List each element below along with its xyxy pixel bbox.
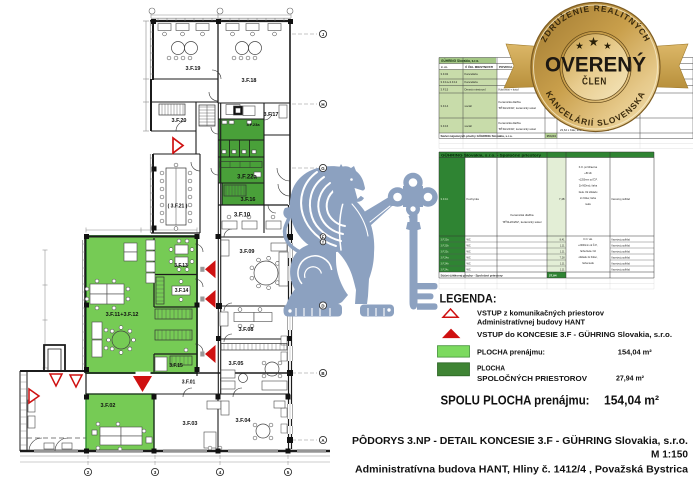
svg-text:3.F.23a: 3.F.23a xyxy=(441,239,450,242)
svg-text:3.F.16: 3.F.16 xyxy=(241,197,256,203)
svg-text:2x Kišter, farba: 2x Kišter, farba xyxy=(580,197,597,200)
svg-text:'BŤ4H/24/02', keramický sokel: 'BŤ4H/24/02', keramický sokel xyxy=(499,126,537,131)
svg-text:Kazetový podhľad: Kazetový podhľad xyxy=(612,198,631,201)
svg-text:Kuchynka: Kuchynka xyxy=(467,197,480,201)
svg-text:3.F.16: 3.F.16 xyxy=(441,124,449,128)
svg-text:3.F.14: 3.F.14 xyxy=(175,288,189,294)
svg-text:'BŤ4H/24/02', keramický sokel: 'BŤ4H/24/02', keramický sokel xyxy=(499,105,537,110)
svg-text:3.F.03: 3.F.03 xyxy=(183,421,198,427)
svg-text:3.F.23c: 3.F.23c xyxy=(441,251,450,254)
svg-text:5: 5 xyxy=(287,470,290,475)
svg-text:+2000mm od Č.P.,: +2000mm od Č.P., xyxy=(578,244,598,247)
svg-text:D: D xyxy=(321,303,324,308)
svg-text:+80 db: +80 db xyxy=(584,172,592,175)
svg-text:3.F.08: 3.F.08 xyxy=(239,327,254,333)
svg-text:sociál: sociál xyxy=(465,104,473,108)
svg-text:+1250mm od Č.P.: +1250mm od Č.P. xyxy=(578,178,597,181)
svg-text:1,11: 1,11 xyxy=(560,269,565,272)
svg-text:WC: WC xyxy=(467,245,471,248)
svg-text:Kancelária: Kancelária xyxy=(465,80,479,84)
svg-text:Kancelária: Kancelária xyxy=(465,72,479,76)
svg-text:Administratívnej budovy HANT: Administratívnej budovy HANT xyxy=(477,318,586,327)
svg-text:154,04 m²: 154,04 m² xyxy=(604,394,659,408)
svg-text:Kazetový podhľad: Kazetový podhľad xyxy=(612,239,631,242)
svg-text:G: G xyxy=(321,166,325,171)
svg-text:OVERENÝ: OVERENÝ xyxy=(545,53,646,77)
svg-text:3.F.24c: 3.F.24c xyxy=(441,269,450,272)
svg-text:sociál: sociál xyxy=(465,124,473,128)
svg-text:č. m.: č. m. xyxy=(441,65,448,69)
svg-text:3.F.04: 3.F.04 xyxy=(236,418,252,424)
svg-text:8,41: 8,41 xyxy=(560,239,565,242)
svg-text:154,04 m²: 154,04 m² xyxy=(618,348,653,357)
svg-text:3.F.10: 3.F.10 xyxy=(234,213,251,219)
svg-text:3.F.20: 3.F.20 xyxy=(172,118,187,124)
svg-text:WC: WC xyxy=(467,251,471,254)
svg-text:3.F.11+3.F.12: 3.F.11+3.F.12 xyxy=(106,312,139,318)
svg-text:farba biela. Od: farba biela. Od xyxy=(580,250,596,253)
svg-text:3.F.05: 3.F.05 xyxy=(229,361,244,367)
svg-text:Keramická dlažba: Keramická dlažba xyxy=(499,100,522,104)
svg-text:Keramická dlažba: Keramická dlažba xyxy=(511,213,534,217)
svg-text:3.F.24b: 3.F.24b xyxy=(441,263,450,266)
svg-text:3.F.13: 3.F.13 xyxy=(174,263,188,269)
svg-text:3.F.09: 3.F.09 xyxy=(240,249,255,255)
svg-text:2(+900mv), farba: 2(+900mv), farba xyxy=(579,185,598,188)
svg-text:2: 2 xyxy=(87,470,90,475)
svg-text:3.F.15: 3.F.15 xyxy=(441,88,449,92)
svg-text:27,94: 27,94 xyxy=(549,273,557,277)
svg-text:3.F.23a: 3.F.23a xyxy=(246,122,260,127)
svg-text:VSTUP do KONCESIE 3.F - GÜHRIN: VSTUP do KONCESIE 3.F - GÜHRING Slovakia… xyxy=(477,330,672,339)
svg-text:LEGENDA:: LEGENDA: xyxy=(440,294,497,306)
svg-text:GÜHRING Slovakia, s.r.o.: GÜHRING Slovakia, s.r.o. xyxy=(441,58,479,63)
svg-text:★: ★ xyxy=(603,41,612,52)
svg-text:VSTUP z komunikačných priestor: VSTUP z komunikačných priestorov xyxy=(477,309,604,318)
svg-text:Kazetový podhľad: Kazetový podhľad xyxy=(612,245,631,248)
svg-text:3.F.1b: 3.F.1b xyxy=(441,197,449,201)
svg-text:154,04: 154,04 xyxy=(547,134,557,138)
svg-text:3.F.11+3.F.12: 3.F.11+3.F.12 xyxy=(441,80,458,84)
svg-text:ČLEN: ČLEN xyxy=(582,75,607,88)
svg-text:7,28: 7,28 xyxy=(560,257,565,260)
svg-text:WC: WC xyxy=(467,239,471,242)
svg-text:K.O. po Mriavové: K.O. po Mriavové xyxy=(579,166,598,169)
svg-text:3.F.17: 3.F.17 xyxy=(264,112,279,118)
svg-text:Súčet úžitkovej plochy - Spolo: Súčet úžitkovej plochy - Spoločné priest… xyxy=(441,273,504,277)
svg-text:★: ★ xyxy=(575,41,584,52)
svg-text:K.O. vát.: K.O. vát. xyxy=(583,238,593,241)
svg-text:3.F.22a: 3.F.22a xyxy=(237,175,257,181)
svg-text:Ú ČEL MIESTNOSTI: Ú ČEL MIESTNOSTI xyxy=(465,64,493,69)
svg-text:( 3.F.21 ): ( 3.F.21 ) xyxy=(168,204,188,210)
svg-text:PLOCHA: PLOCHA xyxy=(477,364,505,373)
svg-text:1,11: 1,11 xyxy=(560,251,565,254)
svg-text:7,48: 7,48 xyxy=(559,197,565,201)
svg-text:WC: WC xyxy=(467,269,471,272)
svg-text:3.F.24a: 3.F.24a xyxy=(441,257,450,260)
svg-text:SPOLOČNÝCH PRIESTOROV: SPOLOČNÝCH PRIESTOROV xyxy=(477,374,587,383)
svg-text:WC: WC xyxy=(467,263,471,266)
svg-text:3.F.18: 3.F.18 xyxy=(242,78,257,84)
svg-text:B: B xyxy=(321,371,324,376)
svg-text:Denná miestnosť: Denná miestnosť xyxy=(465,88,487,92)
svg-text:farba šedá: farba šedá xyxy=(582,262,594,265)
svg-text:3.F.02: 3.F.02 xyxy=(101,403,116,409)
svg-text:1,11: 1,11 xyxy=(560,263,565,266)
svg-text:1,11: 1,11 xyxy=(560,245,565,248)
svg-text:F: F xyxy=(322,234,325,239)
svg-text:'BŤ4H/24/02', keramický sokel: 'BŤ4H/24/02', keramický sokel xyxy=(503,219,542,224)
svg-text:3.F.15: 3.F.15 xyxy=(169,363,183,369)
svg-text:PÔDORYS 3.NP - DETAIL KONCESIE: PÔDORYS 3.NP - DETAIL KONCESIE 3.F - GÜH… xyxy=(352,434,688,447)
svg-text:4: 4 xyxy=(219,470,222,475)
svg-text:PLOCHA prenájmu:: PLOCHA prenájmu: xyxy=(477,348,545,357)
svg-text:Kazetový podhľad: Kazetový podhľad xyxy=(612,269,631,272)
svg-text:šedá: šedá xyxy=(585,203,591,206)
svg-text:Keramická dlažba: Keramická dlažba xyxy=(499,121,522,125)
svg-text:M 1:150: M 1:150 xyxy=(651,450,688,461)
svg-text:GÜHRING Slovakia, s.r.o. - Sp: GÜHRING Slovakia, s.r.o. - Spoločné prie… xyxy=(441,152,541,157)
svg-text:★: ★ xyxy=(588,35,599,49)
svg-text:biela. Od obkladu: biela. Od obkladu xyxy=(579,191,598,194)
svg-text:3.F.01: 3.F.01 xyxy=(182,380,196,386)
svg-text:3: 3 xyxy=(154,470,157,475)
svg-text:H: H xyxy=(321,102,324,107)
svg-text:obkladu 2x Kišter,: obkladu 2x Kišter, xyxy=(579,256,598,259)
svg-text:Kazetový podhľad: Kazetový podhľad xyxy=(612,257,631,260)
svg-text:Kazetový podhľad: Kazetový podhľad xyxy=(612,263,631,266)
svg-text:3.F.23b: 3.F.23b xyxy=(441,245,450,248)
svg-text:27,94 m²: 27,94 m² xyxy=(616,374,645,383)
svg-text:Kazetový podhľad: Kazetový podhľad xyxy=(612,251,631,254)
svg-text:Súčet nájomných plochy GÜHRING: Súčet nájomných plochy GÜHRING Slovakia,… xyxy=(441,133,513,138)
svg-text:3.F.19: 3.F.19 xyxy=(186,66,201,72)
svg-text:3.F.14: 3.F.14 xyxy=(441,104,449,108)
svg-text:SPOLU PLOCHA prenájmu:: SPOLU PLOCHA prenájmu: xyxy=(441,394,590,408)
svg-text:Administratívna budova HANT, H: Administratívna budova HANT, Hliny č. 14… xyxy=(355,465,688,476)
svg-text:3.F.02: 3.F.02 xyxy=(441,72,449,76)
svg-text:WC: WC xyxy=(467,257,471,260)
